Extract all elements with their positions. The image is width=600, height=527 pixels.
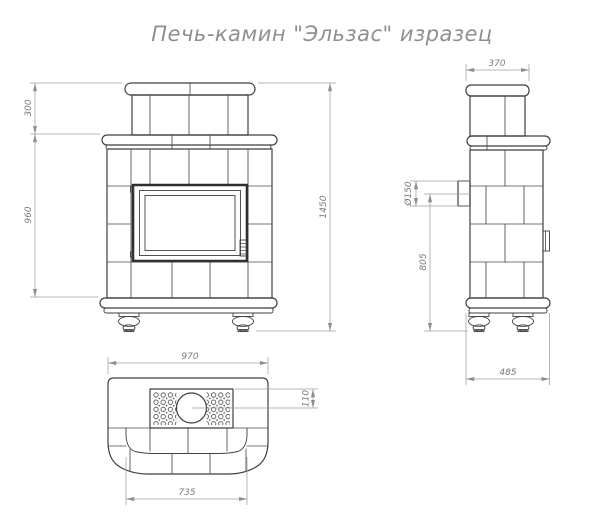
top-grille-plate [150,389,233,428]
top-view [108,378,268,474]
page-title: Печь-камин "Эльзас" изразец [151,22,492,46]
dim-flue-center-offset: 110 [302,390,312,407]
side-base-molding [466,298,550,308]
dim-body-width: 735 [178,488,195,498]
plan-inner-outline [126,428,247,454]
front-right-foot [233,313,254,332]
grille-holes-right [207,392,231,425]
dim-flue-axis-height: 805 [419,253,429,270]
dim-body-height: 960 [24,206,34,223]
grille-holes-left [153,392,177,425]
dim-total-height: 1450 [319,195,329,218]
dim-chimney-depth: 370 [488,59,505,69]
fire-door [131,185,248,261]
side-chimney-body [470,96,525,136]
side-front-foot [469,313,490,332]
front-base-molding [100,298,277,308]
front-view [100,83,277,332]
dim-overall-width: 970 [181,352,198,362]
front-cornice [102,135,277,145]
side-door-handle [543,231,550,251]
front-left-foot [119,313,140,332]
dim-upper-section-height: 300 [24,99,34,116]
front-chimney-body [132,95,248,135]
door-handle [240,240,247,256]
plan-outer-outline [108,378,268,474]
drawing-canvas: Печь-камин "Эльзас" изразец [0,0,600,527]
side-back-foot [513,313,534,332]
side-cornice [467,136,550,146]
dimensions: 300 960 1450 370 Ø150 805 485 970 110 [24,59,550,505]
side-view [458,85,550,332]
dim-flue-diameter: Ø150 [403,181,414,207]
flue-outlet-stub [458,181,470,206]
dim-base-depth: 485 [499,368,516,378]
side-chimney-cap [466,85,529,96]
